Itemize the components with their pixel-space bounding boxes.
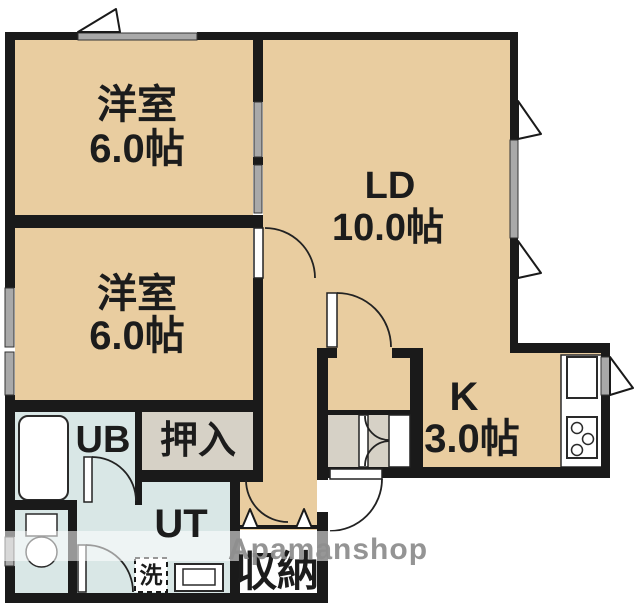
wall-bedroom2-bottom	[5, 400, 263, 412]
window-bedroom2-left-upper	[5, 288, 14, 347]
wall-bath-bottom	[13, 500, 77, 510]
awning-window-icon	[610, 357, 633, 395]
window-kitchen-right	[601, 357, 610, 395]
awning-window-icon	[78, 9, 120, 32]
floor-plan: 洋室 6.0帖 洋室 6.0帖 LD 10.0帖 K 3.0帖 UB 押入 UT…	[0, 0, 640, 611]
awning-window-icon	[518, 101, 541, 139]
floor-plan-canvas: 洋室 6.0帖 洋室 6.0帖 LD 10.0帖 K 3.0帖 UB 押入 UT…	[0, 0, 640, 611]
washer-pan-inner	[183, 569, 215, 585]
wall-kitchen-top	[510, 343, 610, 353]
oshiire-closet-label: 押入	[160, 420, 236, 462]
kitchen-sink	[567, 357, 597, 398]
unit-bath-label: UB	[76, 419, 131, 461]
bedroom1-name-label: 洋室	[97, 83, 177, 127]
wall-left-mid	[5, 395, 15, 537]
wall-bedroom-divider	[5, 215, 263, 228]
bedroom2-size-label: 6.0帖	[89, 314, 185, 358]
living-dining-size-label: 10.0帖	[332, 207, 444, 249]
entrance-door-swing	[330, 479, 382, 531]
bath-door-leaf	[84, 457, 92, 502]
watermark-text: Apamanshop	[228, 533, 428, 566]
wall-oshiire-bottom	[135, 470, 263, 482]
wall-right-upper	[510, 32, 518, 140]
living-dining-name-label: LD	[365, 165, 416, 207]
wall-spine-stub	[253, 157, 263, 165]
wall-left-upper	[5, 32, 15, 288]
wall-spine-upper	[253, 40, 263, 102]
wall-top-main	[197, 32, 518, 40]
wall-bath-right	[135, 412, 142, 505]
hall-door-leaf	[327, 293, 337, 347]
hall-closet-frame	[389, 415, 410, 467]
burner-icon	[572, 445, 583, 456]
burner-icon	[572, 423, 583, 434]
sliding-door-bedroom1-upper	[254, 102, 262, 157]
wall-top-left	[5, 32, 78, 40]
bedroom2-door-leaf	[254, 228, 263, 278]
bathtub	[19, 416, 68, 500]
burner-icon	[583, 434, 594, 445]
awning-window-icon	[518, 241, 541, 278]
bedroom2-name-label: 洋室	[97, 272, 177, 316]
wall-kitchen-right-upper	[601, 343, 610, 357]
entrance-door-leaf	[330, 469, 382, 479]
wall-hallbox-right	[410, 348, 423, 478]
sliding-door-bedroom1-lower	[254, 165, 262, 213]
window-bedroom2-left-lower	[5, 352, 14, 395]
wall-kitchen-right-lower	[601, 395, 610, 478]
bedroom1-size-label: 6.0帖	[89, 127, 185, 171]
wall-hallbox-top-left	[317, 348, 337, 358]
washer-label: 洗	[140, 562, 163, 588]
utility-label: UT	[154, 502, 207, 546]
kitchen-size-label: 3.0帖	[424, 417, 520, 461]
kitchen-name-label: K	[450, 375, 479, 419]
wall-hallbox-left	[317, 348, 328, 480]
wall-spine-lower	[253, 278, 263, 482]
window-living-right	[510, 140, 518, 238]
wall-right-mid	[510, 238, 518, 353]
window-bedroom1-top	[78, 33, 197, 40]
